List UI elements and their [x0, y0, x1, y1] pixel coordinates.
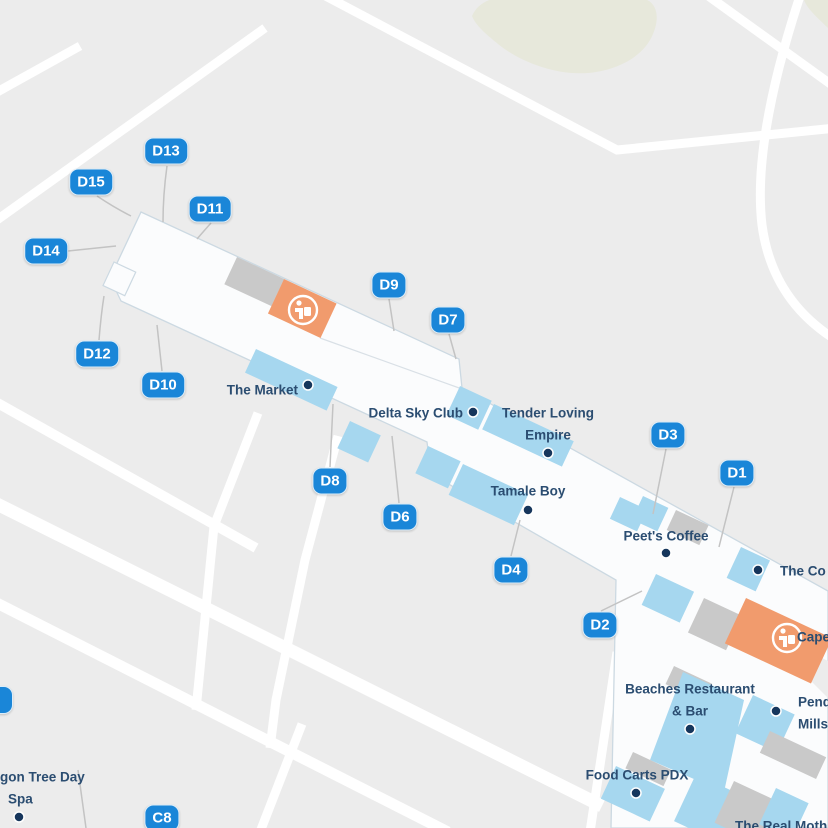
gate-pin-partial[interactable] [0, 686, 13, 714]
gate-pin-d3[interactable]: D3 [650, 422, 685, 449]
poi-label-tamale-boy[interactable]: Tamale Boy [491, 484, 566, 498]
poi-label-pendleton-line2[interactable]: Mills [798, 717, 828, 731]
poi-label-pendleton-line1[interactable]: Pend [798, 695, 828, 709]
poi-label-beaches-bar[interactable]: & Bar [672, 704, 708, 718]
gate-pin-d11[interactable]: D11 [189, 196, 232, 223]
gate-pin-d10[interactable]: D10 [141, 372, 185, 399]
leader-d6 [392, 436, 399, 503]
poi-label-cape[interactable]: Cape [797, 630, 828, 644]
poi-dot-market[interactable] [303, 380, 313, 390]
poi-label-empire[interactable]: Empire [525, 428, 571, 442]
poi-label-food-carts-pdx[interactable]: Food Carts PDX [586, 768, 689, 782]
road [0, 597, 448, 828]
leader-d12 [99, 296, 104, 340]
road [760, 0, 828, 340]
leader-d4 [511, 520, 520, 556]
road [196, 413, 258, 710]
grass-area-corner [804, 0, 828, 28]
poi-label-tender-loving[interactable]: Tender Loving [502, 406, 594, 420]
grass-area [472, 0, 657, 73]
poi-dot-theco[interactable] [753, 565, 763, 575]
gate-pin-d6[interactable]: D6 [382, 504, 417, 531]
poi-dot-delta[interactable] [468, 407, 478, 417]
gate-pin-d2[interactable]: D2 [582, 612, 617, 639]
leader-d11 [197, 223, 211, 239]
leader-d15 [97, 196, 131, 216]
poi-label-delta-sky-club[interactable]: Delta Sky Club [368, 406, 463, 420]
restroom-icon[interactable] [289, 296, 317, 324]
gate-pin-d9[interactable]: D9 [371, 272, 406, 299]
leader-d10 [157, 325, 162, 371]
poi-dot-peets[interactable] [661, 548, 671, 558]
road [0, 46, 80, 96]
poi-label-theco[interactable]: The Co [780, 564, 826, 578]
gate-pin-d12[interactable]: D12 [75, 341, 119, 368]
map-container[interactable]: D13 D15 D11 D14 D12 D10 D9 D7 D8 D6 D4 D… [0, 0, 828, 828]
gate-pin-d1[interactable]: D1 [719, 460, 754, 487]
gate-pin-d13[interactable]: D13 [144, 138, 188, 165]
road [700, 0, 828, 88]
poi-label-beaches-restaurant[interactable]: Beaches Restaurant [625, 682, 755, 696]
poi-dot-tamale[interactable] [523, 505, 533, 515]
leader-d13 [163, 166, 167, 222]
poi-dot-pendleton[interactable] [771, 706, 781, 716]
poi-label-day-spa-line2[interactable]: Spa [8, 792, 33, 806]
poi-dot-foodcarts[interactable] [631, 788, 641, 798]
poi-label-realmoth[interactable]: The Real Moth [735, 819, 827, 828]
gate-pin-d14[interactable]: D14 [24, 238, 68, 265]
poi-label-market[interactable]: The Market [227, 383, 298, 397]
poi-label-day-spa-line1[interactable]: gon Tree Day [0, 770, 85, 784]
leader-d9 [389, 299, 394, 331]
gate-pin-d15[interactable]: D15 [69, 169, 113, 196]
poi-dot-dayspa[interactable] [14, 812, 24, 822]
gate-pin-d8[interactable]: D8 [312, 468, 347, 495]
gate-pin-d4[interactable]: D4 [493, 557, 528, 584]
poi-label-peets-coffee[interactable]: Peet's Coffee [624, 529, 709, 543]
shop-block [337, 421, 380, 463]
gate-pin-c8[interactable]: C8 [144, 805, 179, 828]
leader-d14 [68, 246, 116, 251]
poi-dot-beaches[interactable] [685, 724, 695, 734]
gate-pin-d7[interactable]: D7 [430, 307, 465, 334]
poi-dot-empire[interactable] [543, 448, 553, 458]
